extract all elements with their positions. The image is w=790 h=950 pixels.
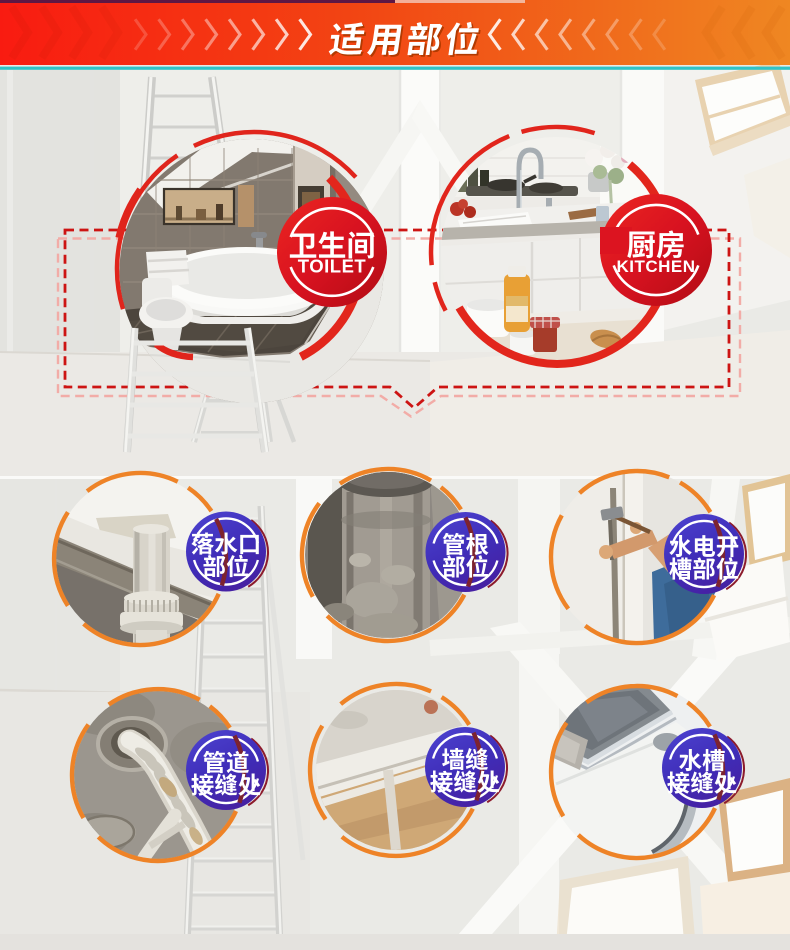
svg-text:TOILET: TOILET bbox=[298, 256, 367, 277]
svg-text:KITCHEN: KITCHEN bbox=[616, 257, 695, 276]
